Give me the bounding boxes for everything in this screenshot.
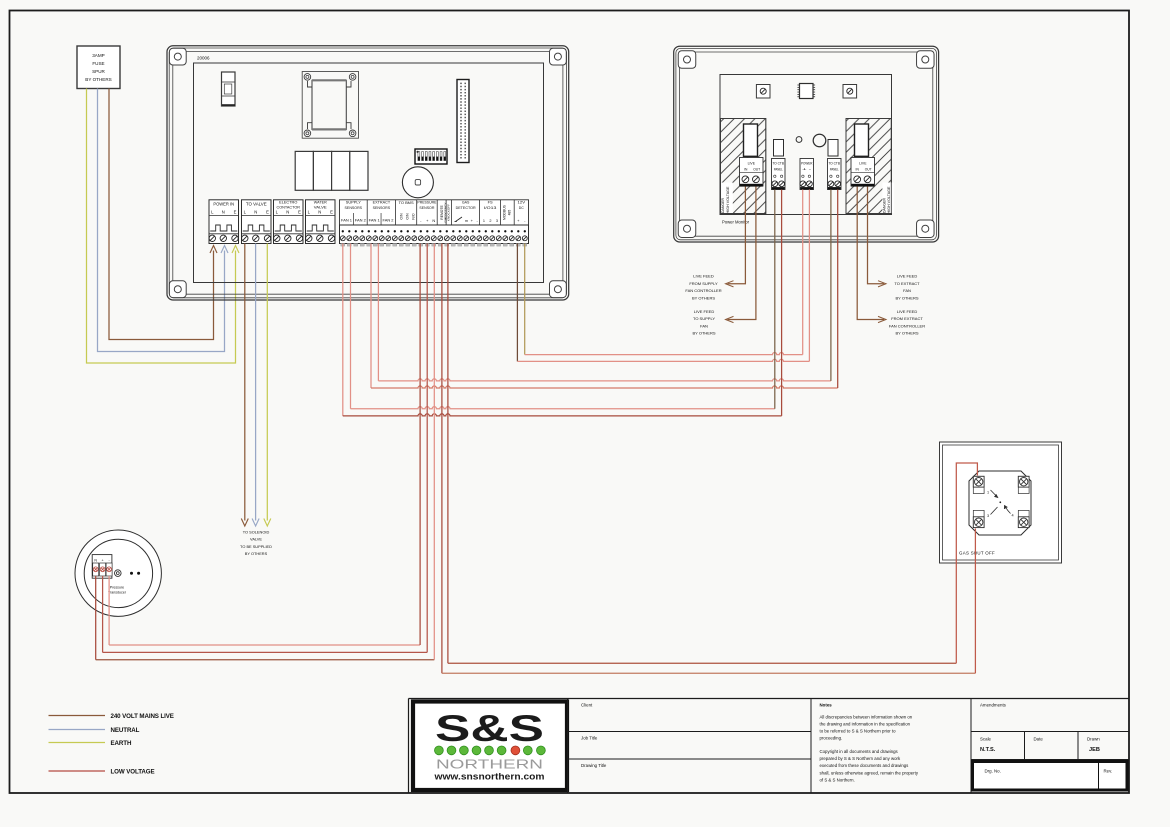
- svg-text:4: 4: [1011, 514, 1013, 518]
- svg-text:FAN CONTROLLER: FAN CONTROLLER: [685, 288, 721, 293]
- svg-text:BY OTHERS: BY OTHERS: [85, 77, 111, 82]
- svg-text:OUT: OUT: [865, 167, 872, 171]
- svg-text:Notes: Notes: [820, 703, 833, 708]
- svg-text:BY OTHERS: BY OTHERS: [692, 331, 715, 336]
- svg-text:LIVE: LIVE: [859, 161, 867, 165]
- svg-text:Scale: Scale: [980, 737, 992, 742]
- svg-text:S&S: S&S: [435, 708, 544, 749]
- svg-text:FAN 2: FAN 2: [355, 218, 366, 222]
- svg-text:FAN: FAN: [903, 288, 911, 293]
- svg-text:Drawn: Drawn: [1087, 737, 1100, 742]
- svg-text:N.T.S.: N.T.S.: [980, 747, 996, 753]
- svg-text:TO EXTRACT: TO EXTRACT: [894, 281, 920, 286]
- svg-text:LOW VOLTAGE: LOW VOLTAGE: [111, 769, 155, 776]
- svg-text:VALVE: VALVE: [250, 537, 262, 542]
- svg-text:TO CTB: TO CTB: [772, 162, 784, 166]
- svg-text:Rev.: Rev.: [1104, 769, 1113, 774]
- svg-text:E: E: [266, 210, 269, 215]
- svg-text:EARTH: EARTH: [111, 740, 132, 747]
- svg-text:Drg. No.: Drg. No.: [985, 769, 1001, 774]
- svg-text:Date: Date: [1034, 737, 1044, 742]
- svg-text:LIVE FEED: LIVE FEED: [693, 274, 714, 279]
- svg-text:O/N: O/N: [400, 213, 404, 220]
- svg-text:E: E: [298, 210, 301, 215]
- svg-text:NEUTRAL: NEUTRAL: [111, 727, 140, 734]
- svg-text:TO VALVE: TO VALVE: [246, 201, 267, 206]
- svg-text:MODBUS: MODBUS: [503, 204, 507, 220]
- svg-text:O/N: O/N: [406, 213, 410, 220]
- svg-text:TO SUPPLY: TO SUPPLY: [693, 316, 715, 321]
- svg-text:2: 2: [489, 219, 491, 223]
- svg-text:BY OTHERS: BY OTHERS: [895, 331, 918, 336]
- svg-text:N: N: [222, 210, 225, 215]
- svg-text:12V: 12V: [518, 200, 526, 205]
- svg-text:20006: 20006: [197, 56, 210, 61]
- svg-text:PANEL: PANEL: [774, 168, 783, 172]
- svg-text:Job Title: Job Title: [581, 736, 598, 741]
- svg-text:to be referred to S & S Northe: to be referred to S & S Northern prior t…: [820, 729, 897, 734]
- svg-text:LIVE FEED: LIVE FEED: [897, 274, 918, 279]
- svg-text:SENSORS: SENSORS: [373, 205, 391, 210]
- svg-text:FROM EXTRACT: FROM EXTRACT: [891, 316, 923, 321]
- svg-text:FAN: FAN: [700, 323, 708, 328]
- svg-text:KNOCKOFF: KNOCKOFF: [447, 204, 451, 221]
- svg-text:GAS SHUT OFF: GAS SHUT OFF: [959, 551, 995, 556]
- svg-text:of S & S Northern.: of S & S Northern.: [820, 777, 855, 782]
- svg-text:N: N: [254, 210, 257, 215]
- svg-text:the drawing and information in: the drawing and information in the speci…: [820, 721, 911, 726]
- svg-text:TO BE SUPPLIED: TO BE SUPPLIED: [240, 544, 272, 549]
- svg-text:FAN CONTROLLER: FAN CONTROLLER: [889, 323, 925, 328]
- svg-text:I/O13: I/O13: [484, 205, 497, 210]
- svg-text:N: N: [318, 210, 321, 215]
- svg-text:N: N: [432, 218, 435, 223]
- svg-text:SPUR: SPUR: [92, 69, 105, 74]
- svg-text:Copyright in all documents and: Copyright in all documents and drawings: [820, 749, 899, 754]
- svg-text:All discrepancies between info: All discrepancies between information sh…: [820, 714, 913, 719]
- svg-text:prepared by S & S Northern and: prepared by S & S Northern and any work: [820, 756, 901, 761]
- svg-text:JEB: JEB: [1089, 747, 1100, 753]
- svg-text:Drawing Title: Drawing Title: [581, 763, 607, 768]
- svg-text:FS: FS: [488, 200, 493, 205]
- svg-text:DC: DC: [519, 205, 524, 210]
- svg-text:E: E: [330, 210, 333, 215]
- svg-text:BY OTHERS: BY OTHERS: [895, 295, 918, 300]
- svg-text:HIGH VOLTAGE: HIGH VOLTAGE: [726, 186, 730, 214]
- svg-text:shall, unless otherwise agreed: shall, unless otherwise agreed, remain t…: [820, 770, 919, 775]
- svg-text:FAN 1: FAN 1: [369, 218, 380, 222]
- svg-text:N: N: [286, 210, 289, 215]
- svg-text:EXTRACT: EXTRACT: [373, 200, 391, 205]
- svg-text:3: 3: [987, 514, 989, 518]
- svg-text:+ -: + -: [802, 168, 811, 172]
- svg-text:+: +: [102, 558, 104, 562]
- svg-text:SENSOR: SENSOR: [419, 205, 434, 210]
- svg-text:SUPPLY: SUPPLY: [346, 200, 361, 205]
- svg-text:Pressure: Pressure: [110, 586, 124, 590]
- svg-text:DANGER: DANGER: [721, 197, 725, 213]
- svg-text:FROM SUPPLY: FROM SUPPLY: [689, 281, 718, 286]
- svg-text:BY OTHERS: BY OTHERS: [245, 551, 268, 556]
- svg-text:FUSE: FUSE: [92, 61, 104, 66]
- svg-text:HIGH VOLTAGE: HIGH VOLTAGE: [887, 186, 891, 214]
- svg-text:m: m: [465, 219, 468, 223]
- svg-text:3AMP: 3AMP: [92, 53, 105, 58]
- svg-text:SENSORS: SENSORS: [345, 205, 363, 210]
- svg-text:Transducer: Transducer: [108, 591, 127, 595]
- svg-text:proceeding.: proceeding.: [820, 736, 843, 741]
- svg-text:DANGER: DANGER: [882, 197, 886, 213]
- svg-text:www.snsnorthern.com: www.snsnorthern.com: [433, 772, 544, 782]
- svg-text:LIVE: LIVE: [748, 161, 756, 165]
- svg-text:GAS: GAS: [462, 200, 470, 205]
- svg-text:executed from these documents: executed from these documents and drawin…: [820, 763, 910, 768]
- svg-text:PANEL: PANEL: [830, 168, 839, 172]
- svg-text:BY OTHERS: BY OTHERS: [692, 295, 715, 300]
- svg-text:TO CTB: TO CTB: [828, 162, 840, 166]
- svg-text:LIVE FEED: LIVE FEED: [694, 309, 715, 314]
- svg-text:OUT: OUT: [753, 167, 760, 171]
- svg-text:LIVE FEED: LIVE FEED: [897, 309, 918, 314]
- svg-text:1: 1: [987, 491, 989, 495]
- svg-text:FAN 1: FAN 1: [341, 218, 352, 222]
- svg-text:POWER IN: POWER IN: [213, 201, 234, 206]
- svg-text:FAN 2: FAN 2: [383, 218, 394, 222]
- svg-text:N: N: [94, 558, 97, 562]
- svg-text:1: 1: [483, 219, 485, 223]
- svg-text:E: E: [234, 210, 237, 215]
- svg-text:NORTHERN: NORTHERN: [436, 756, 543, 771]
- svg-text:Client: Client: [581, 703, 593, 708]
- svg-text:TO SOLENOID: TO SOLENOID: [243, 530, 270, 535]
- svg-text:3: 3: [496, 219, 498, 223]
- svg-text:485: 485: [508, 210, 512, 216]
- svg-text:PRESSURE: PRESSURE: [417, 200, 436, 205]
- svg-text:DETECTOR: DETECTOR: [456, 205, 476, 210]
- svg-text:TO BMS: TO BMS: [399, 200, 414, 205]
- svg-text:Amendments: Amendments: [980, 703, 1007, 708]
- svg-text:240 VOLT MAINS LIVE: 240 VOLT MAINS LIVE: [111, 713, 174, 720]
- svg-text:POWER: POWER: [801, 162, 813, 166]
- svg-text:N/O: N/O: [412, 213, 416, 220]
